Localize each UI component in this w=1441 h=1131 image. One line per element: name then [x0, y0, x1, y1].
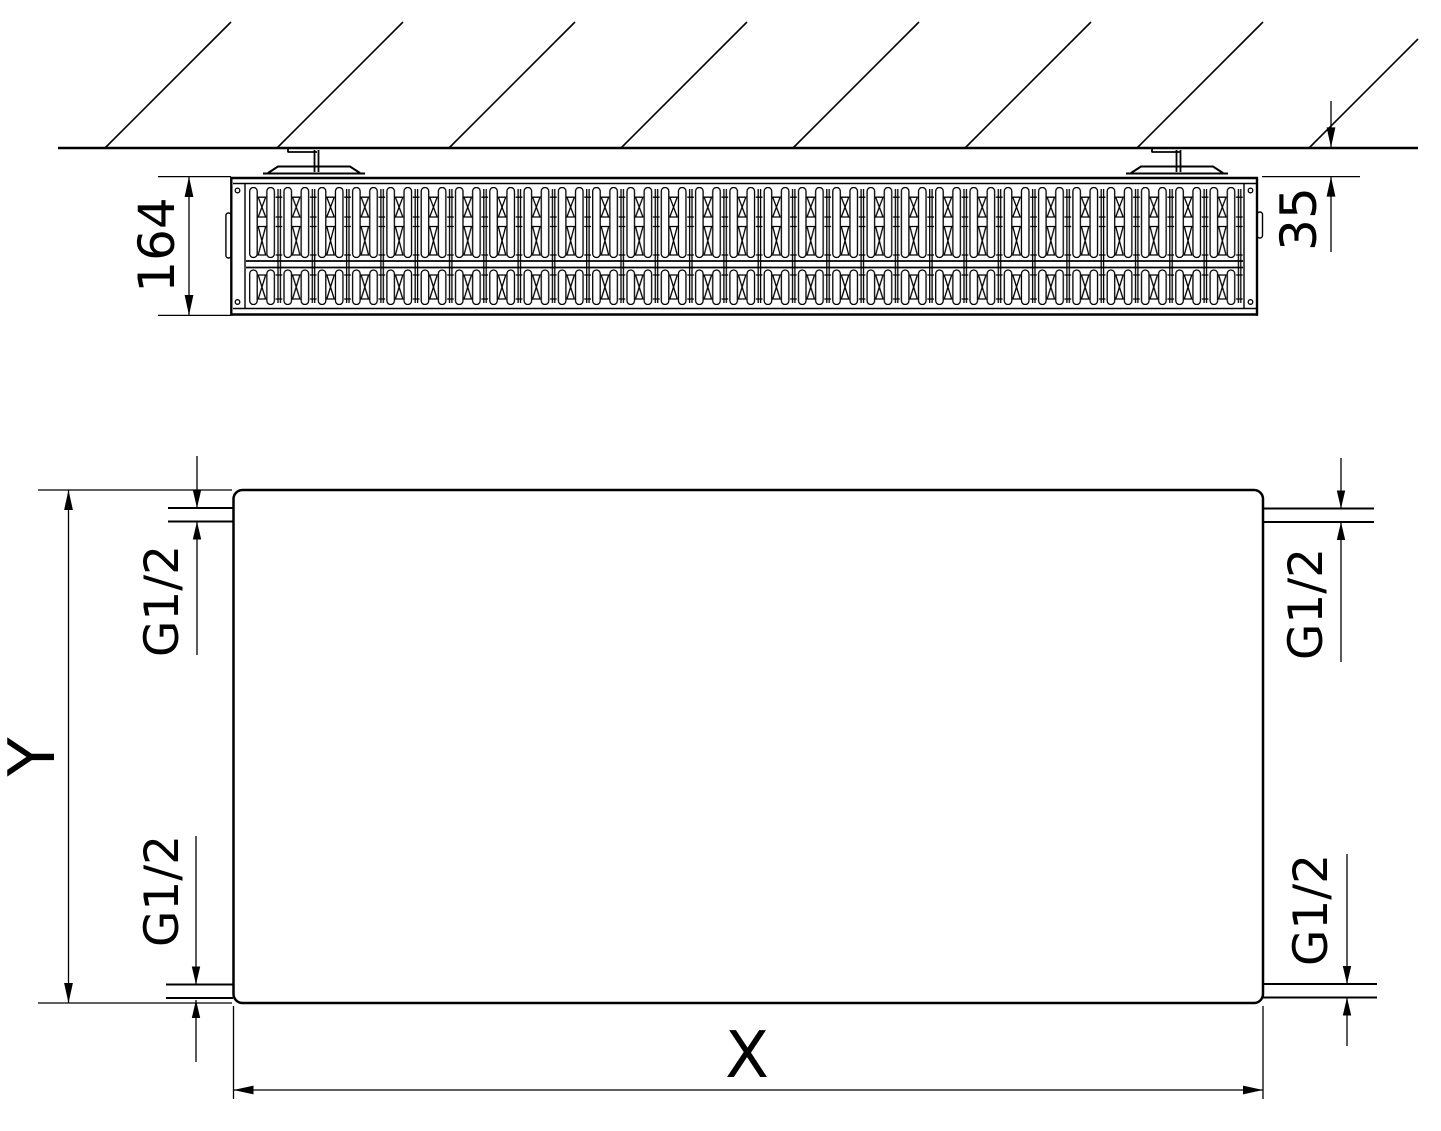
- dimension-wall-gap-35: 35: [1262, 101, 1360, 252]
- screw-dot: [235, 188, 240, 193]
- radiator-top-view-body: [226, 177, 1263, 316]
- dimension-depth-164: 164: [128, 177, 231, 316]
- wall-gap-dimension-label: 35: [1270, 187, 1328, 251]
- arrowhead-down: [1337, 491, 1345, 509]
- arrowhead-down: [192, 967, 200, 985]
- arrowhead-down: [1343, 966, 1351, 984]
- width-dimension-label: X: [725, 1019, 769, 1093]
- dimension-width-X: X: [234, 1006, 1264, 1099]
- top-section-view: 164 35: [58, 22, 1418, 316]
- screw-dot: [235, 300, 240, 305]
- screw-dot: [1248, 300, 1253, 305]
- arrowhead-up: [64, 490, 73, 510]
- arrowhead-up: [1343, 998, 1351, 1016]
- mounting-bracket-right: [1126, 149, 1228, 174]
- arrowhead-down: [185, 295, 194, 315]
- connection-thread-label: G1/2: [135, 545, 190, 657]
- connection-thread-label: G1/2: [1284, 854, 1339, 966]
- radiator-front-panel: [234, 490, 1264, 1003]
- arrowhead-right: [1243, 1086, 1263, 1095]
- technical-drawing-page: 164 35 Y: [0, 0, 1441, 1131]
- connection-thread-label: G1/2: [135, 835, 190, 947]
- connection-bottom-left: G1/2: [135, 835, 233, 1062]
- front-view: Y X G1/2: [0, 456, 1377, 1099]
- arrowhead-up: [185, 177, 194, 197]
- connection-bottom-right: G1/2: [1263, 854, 1377, 1046]
- arrowhead-up: [1337, 522, 1345, 540]
- connection-thread-label: G1/2: [1279, 548, 1334, 660]
- arrowhead-up: [193, 522, 201, 540]
- mounting-bracket-left: [263, 149, 365, 174]
- wall-hatch: [105, 22, 1418, 148]
- screw-dot: [1248, 188, 1253, 193]
- arrowhead-left: [234, 1086, 254, 1095]
- arrowhead-down: [193, 490, 201, 508]
- fin-field: [248, 187, 1243, 305]
- arrowhead-down: [1327, 127, 1336, 147]
- arrowhead-down: [64, 983, 73, 1003]
- height-dimension-label: Y: [0, 737, 70, 778]
- connection-top-left: G1/2: [135, 456, 233, 657]
- connection-top-right: G1/2: [1263, 458, 1374, 662]
- radiator-drawing: 164 35 Y: [0, 0, 1441, 1131]
- depth-dimension-label: 164: [128, 197, 186, 292]
